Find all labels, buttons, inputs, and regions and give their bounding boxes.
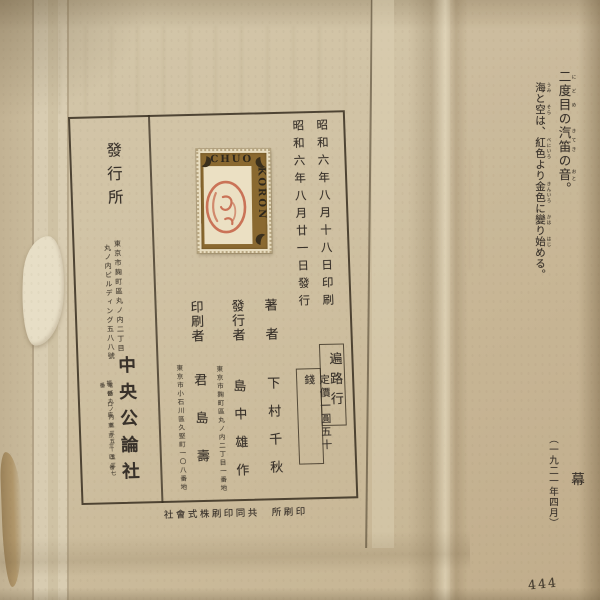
publisher-label: 發行者 (226, 299, 247, 359)
curtain-ending-mark: 幕 (566, 472, 586, 486)
stamp-text-chuo: CHUO (210, 153, 253, 164)
printer-label: 印刷者 (185, 300, 206, 360)
page-fold-highlight (372, 0, 394, 548)
ending-date-note: （一九二一年四月） (545, 434, 559, 544)
final-text-line-1: 二度目にどめの汽笛きてきの音おと。 (552, 70, 576, 220)
stamp-inner-panel (203, 166, 252, 244)
price-box: 定價一圓五十錢 (296, 368, 324, 465)
author-label: 著者 (259, 298, 280, 358)
price-text: 定價一圓五十錢 (302, 374, 335, 464)
publisher-stamp: CHUO KORON (196, 149, 271, 253)
publishing-office-name: 中央公論社 (113, 355, 143, 491)
stamp-text-koron: KORON (255, 167, 267, 220)
showthrough-ghost-text (58, 26, 346, 114)
right-edge-shadow (578, 0, 600, 600)
bottom-page-curve-shadow (0, 530, 470, 578)
final-text-line-2: 海うみと空そらは、紅色べにいろより金色きんいろに變かはり始はじめる。 (527, 82, 551, 282)
bottom-edge-shadow (0, 588, 600, 600)
colophon: 昭和六年八月十八日印刷 昭和六年八月廿一日發行 CHUO KORON (68, 110, 358, 505)
book-colophon-photo: 昭和六年八月十八日印刷 昭和六年八月廿一日發行 CHUO KORON (0, 0, 600, 600)
publishing-office-label: 發行所 (102, 142, 127, 223)
